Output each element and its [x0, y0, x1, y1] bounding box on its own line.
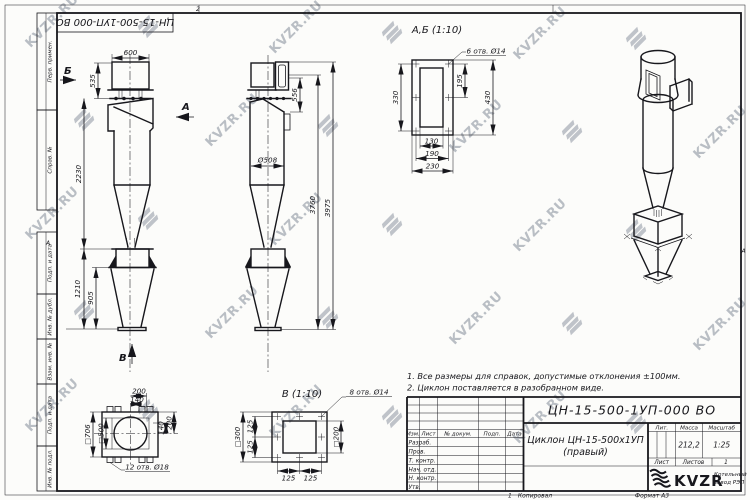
sidebar-label-inv-dubl: Инв. № дубл. [48, 297, 54, 335]
sidebar-label-vzam-inv: Взам. инв. № [48, 342, 54, 380]
sidebar-label-podp-data-2: Подп. и дата [48, 395, 54, 434]
scale-label: Масштаб [708, 426, 735, 432]
detail-base: 200 140 140 200 □706 □500 12 отв. Ø18 [83, 387, 178, 472]
dim-front-1210: 1210 [73, 279, 82, 298]
dim-v-s200: □200 [332, 426, 341, 447]
sidebar-stamps: Перв. примен. Справ. № Подп. и дата Инв.… [37, 13, 57, 491]
format-label: Формат А3 [635, 493, 669, 500]
row-prov: Пров. [409, 450, 426, 456]
dim-side-d508: Ø508 [257, 156, 278, 165]
dim-base-s500: □500 [97, 423, 106, 444]
dim-side-3760: 3760 [308, 195, 317, 214]
dim-front-535: 535 [88, 74, 97, 88]
fold-mark-bottom: 1 [508, 493, 512, 500]
detail-ab-holes-label: 6 отв. Ø14 [466, 47, 505, 56]
dim-base-200r: 200 [165, 416, 174, 430]
top-doc-number: ЦН-15-500-1УП-000 ВО [56, 16, 175, 27]
top-doc-stamp: ЦН-15-500-1УП-000 ВО [56, 13, 175, 32]
dim-side-556: 556 [290, 88, 299, 102]
brand-sub-line2: завод РЭП [714, 480, 745, 486]
sidebar-label-inv-podl: Инв. № подл. [48, 449, 54, 488]
product-name-line2: (правый) [563, 447, 608, 458]
dim-base-s706: □706 [83, 424, 92, 445]
note-line-1: 1. Все размеры для справок, допустимые о… [407, 371, 680, 381]
iso-view [624, 51, 692, 285]
col-data: Дата [506, 432, 522, 438]
lit-label: Лит. [654, 426, 668, 432]
dim-ab-195: 195 [455, 74, 464, 88]
kvzr-logo-icon [650, 470, 671, 487]
bottom-margin: 1 Копировал Формат А3 [508, 493, 669, 500]
dim-v-125d: 125 [304, 474, 318, 483]
detail-v-holes [274, 413, 325, 461]
detail-v-title: В (1:10) [282, 389, 322, 400]
col-list: Лист [420, 432, 436, 438]
dim-v-s300: □300 [233, 426, 242, 447]
view-arrow-b-label: Б [64, 66, 72, 77]
sheets-value: 1 [724, 460, 728, 466]
dim-front-2230: 2230 [74, 164, 83, 183]
zone-letter-right: А [740, 248, 745, 255]
drawing-svg: 2 А А Перв. примен. Справ. № Подп. и дат… [0, 0, 750, 500]
dim-base-140t: 140 [130, 395, 144, 404]
iso-neck-hatch [654, 209, 662, 217]
dim-v-125a: 125 [246, 419, 255, 433]
scale-value: 1:25 [713, 441, 730, 450]
dim-ab-330: 330 [391, 90, 400, 104]
view-arrow-a-label: А [181, 102, 190, 113]
detail-ab: А,Б (1:10) 6 отв. Ø14 330 195 430 130 19… [391, 25, 506, 174]
front-view: 600 535 2230 1210 905 Б А В [60, 48, 194, 372]
notes: 1. Все размеры для справок, допустимые о… [407, 371, 680, 393]
row-tkontr: Т. контр. [409, 459, 436, 465]
view-arrow-v-label: В [119, 353, 127, 364]
mass-label: Масса [680, 426, 698, 432]
dim-front-905: 905 [86, 291, 95, 305]
detail-ab-title: А,Б (1:10) [411, 25, 462, 36]
sidebar-label-perv-primen: Перв. примен. [48, 40, 54, 82]
sidebar-label-sprav-no: Справ. № [48, 146, 54, 173]
col-podp: Подп. [484, 432, 501, 438]
detail-base-holes-label: 12 отв. Ø18 [125, 463, 169, 472]
side-view: Ø508 556 3760 3975 [245, 55, 336, 372]
row-nkontr: Н. контр. [409, 476, 437, 482]
drawing-sheet: KVZR.RUKVZR.RUKVZR.RUKVZR.RUKVZR.RUKVZR.… [0, 0, 750, 500]
detail-v: В (1:10) 8 отв. Ø14 □300 125 125 □200 12… [233, 388, 392, 483]
title-block: ЦН-15-500-1УП-000 ВО Циклон ЦН-15-500х1У… [407, 397, 747, 491]
mass-value: 212,2 [678, 441, 700, 450]
dim-v-125c: 125 [282, 474, 296, 483]
dim-v-125b: 125 [246, 440, 255, 454]
sidebar-label-podp-data-1: Подп. и дата [48, 243, 54, 282]
dim-ab-430: 430 [483, 90, 492, 104]
dim-ab-190: 190 [425, 149, 439, 158]
dim-ab-130: 130 [425, 137, 439, 146]
detail-ab-holes [413, 61, 453, 135]
detail-v-holes-label: 8 отв. Ø14 [349, 388, 388, 397]
dim-side-3975: 3975 [323, 198, 332, 217]
dim-front-600: 600 [124, 48, 138, 57]
fold-mark-top: 2 [196, 6, 200, 13]
row-razrab: Разраб. [409, 441, 432, 447]
row-nachotd: Нач. отд. [409, 468, 437, 474]
note-line-2: 2. Циклон поставляется в разобранном вид… [407, 383, 604, 393]
dim-ab-230: 230 [426, 162, 440, 171]
sheet-label: Лист [653, 460, 669, 466]
product-name-line1: Циклон ЦН-15-500х1УП [527, 435, 644, 446]
doc-number: ЦН-15-500-1УП-000 ВО [548, 403, 716, 418]
copied-label: Копировал [518, 493, 552, 500]
sheets-label: Листов [682, 460, 705, 466]
brand-sub-line1: Котельный [714, 472, 747, 478]
col-ndokum: № докум. [443, 432, 472, 438]
row-utv: Утв. [409, 485, 421, 491]
col-izm: Изм. [407, 432, 420, 438]
